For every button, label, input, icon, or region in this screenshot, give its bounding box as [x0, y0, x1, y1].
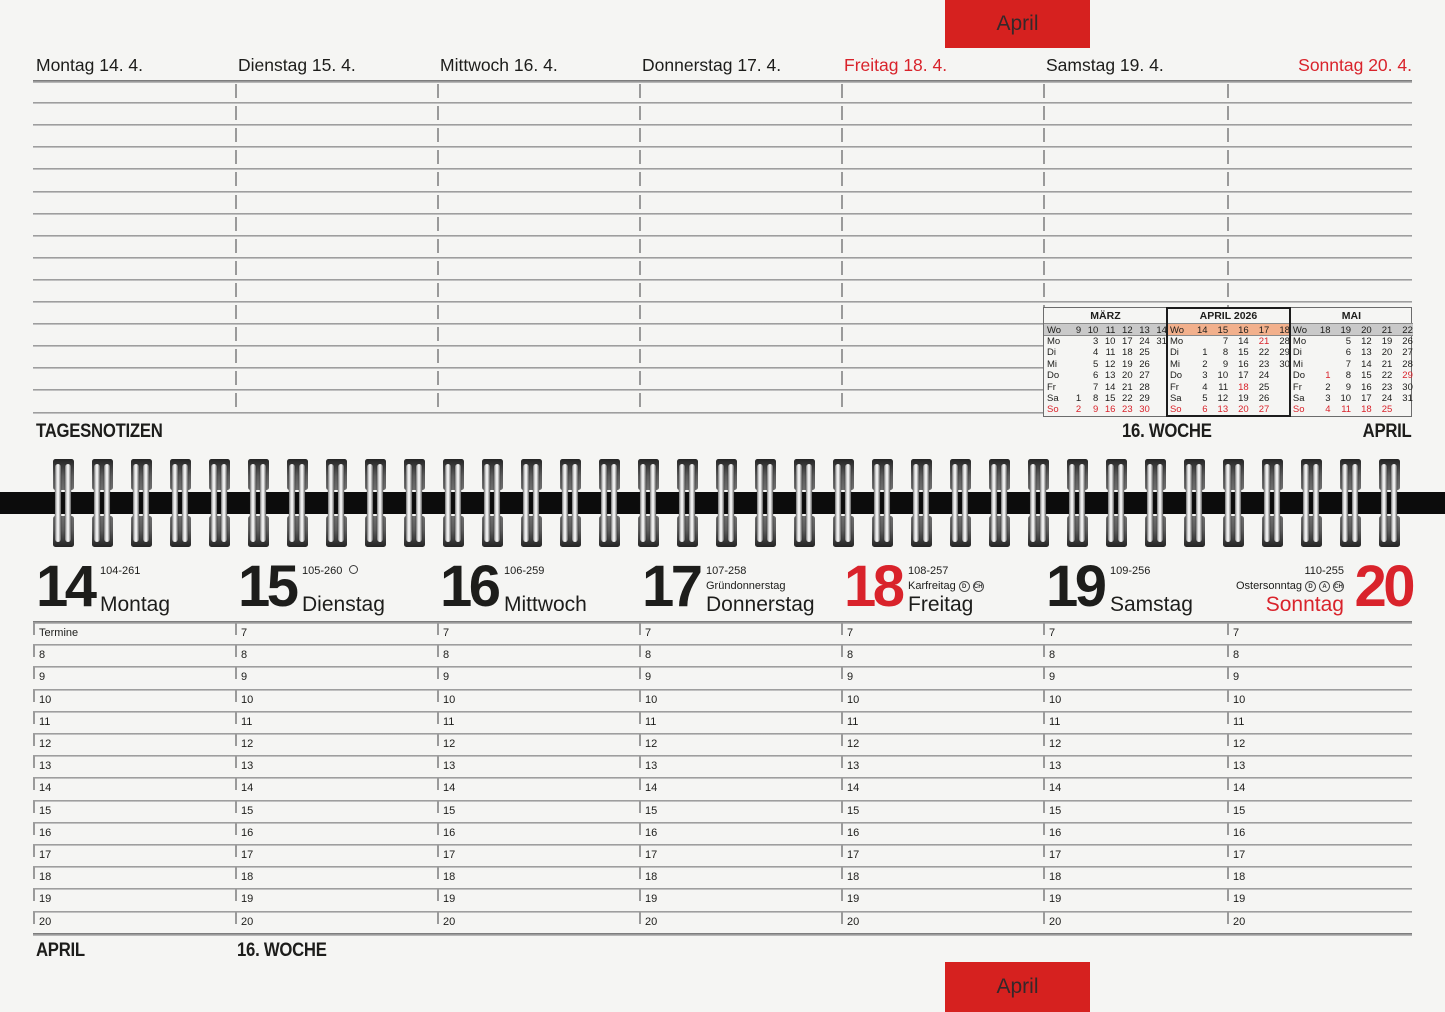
full-moon-icon [349, 565, 358, 574]
column-tick [841, 690, 843, 702]
mini-calendar-weeknumber-row: Wo1819202122 [1290, 323, 1413, 336]
column-tick [235, 867, 237, 879]
column-tick [639, 217, 641, 231]
hour-label: 8 [39, 649, 45, 661]
week-day-block: 17107-258GründonnerstagDonnerstag [642, 556, 842, 622]
week-day-block: 20110-255OstersonntagDACHSonntag [1212, 556, 1412, 622]
column-tick [1227, 283, 1229, 297]
mini-calendar-date: 31 [1392, 393, 1413, 404]
mini-calendar-date: 25 [1249, 382, 1270, 393]
hour-label: 15 [645, 805, 657, 817]
mini-calendar-day-label: Do [1044, 370, 1064, 381]
column-tick [437, 150, 439, 164]
hour-label: 8 [443, 649, 449, 661]
spiral-wire [260, 464, 266, 542]
day-code: 106-259 [504, 565, 587, 580]
hour-label: 16 [847, 827, 859, 839]
column-tick [1043, 217, 1045, 231]
mini-calendar-day-label: Do [1167, 370, 1187, 381]
column-tick [1043, 667, 1045, 679]
spiral-wire [367, 464, 373, 542]
column-tick [235, 889, 237, 901]
hour-label: 7 [847, 627, 853, 639]
mini-calendar-weeknumber: 12 [1115, 324, 1132, 335]
column-tick [437, 778, 439, 790]
column-tick [841, 283, 843, 297]
mini-calendar-date: 14 [1228, 336, 1249, 347]
column-tick [235, 912, 237, 924]
column-tick [841, 623, 843, 635]
week-number-label-bottom: 16. WOCHE [237, 940, 327, 962]
column-tick [235, 261, 237, 275]
spiral-wire [533, 464, 539, 542]
mini-calendar-day-row: Di6132027 [1290, 347, 1413, 358]
mini-calendar-day-label: Fr [1167, 382, 1187, 393]
mini-calendar-date: 13 [1208, 404, 1229, 415]
column-tick [437, 393, 439, 407]
column-tick [639, 889, 641, 901]
mini-calendar-date: 18 [1351, 404, 1372, 415]
mini-calendar-date: 14 [1098, 382, 1115, 393]
mini-calendar-date [1187, 336, 1208, 347]
hour-label: 17 [1049, 849, 1061, 861]
column-tick [235, 756, 237, 768]
mini-calendar-date: 23 [1372, 382, 1393, 393]
day-name: Montag [100, 594, 170, 616]
spiral-wire [601, 464, 607, 542]
mini-calendar-date: 13 [1098, 370, 1115, 381]
spiral-wire [1391, 464, 1397, 542]
spiral-wire [377, 464, 383, 542]
spiral-wire [484, 464, 490, 542]
mini-calendar: MÄRZWo91011121314Mo310172431Di4111825Mi5… [1043, 307, 1412, 417]
notes-line [33, 146, 1412, 148]
mini-calendar-date: 20 [1228, 404, 1249, 415]
hour-label: 8 [1049, 649, 1055, 661]
spiral-wire [494, 464, 500, 542]
hour-label: 7 [1233, 627, 1239, 639]
mini-calendar-date: 12 [1098, 359, 1115, 370]
day-code: 107-258 [706, 565, 815, 580]
day-info: 109-256Samstag [1110, 565, 1193, 616]
mini-calendar-date: 26 [1249, 393, 1270, 404]
mini-calendar-month: MAIWo1819202122Mo5121926Di6132027Mi71421… [1290, 308, 1413, 416]
hour-label: 12 [645, 738, 657, 750]
hour-label: 7 [443, 627, 449, 639]
spiral-wire [913, 464, 919, 542]
week-day-block: 16106-259Mittwoch [440, 556, 640, 622]
spiral-wire [1147, 464, 1153, 542]
hour-label: 17 [847, 849, 859, 861]
column-tick [1043, 128, 1045, 142]
mini-calendar-day-row: Mi29162330 [1167, 359, 1290, 370]
column-tick [1227, 734, 1229, 746]
hour-row-line [33, 933, 1412, 936]
column-tick [639, 867, 641, 879]
day-number: 17 [642, 556, 700, 618]
hour-label: 19 [241, 893, 253, 905]
mini-calendar-date: 6 [1331, 347, 1352, 358]
column-tick [235, 349, 237, 363]
column-tick [841, 845, 843, 857]
spiral-wire [455, 464, 461, 542]
mini-calendar-weeknumber-row: Wo1415161718 [1167, 323, 1290, 336]
column-tick [1227, 889, 1229, 901]
notes-line [33, 124, 1412, 126]
column-tick [639, 734, 641, 746]
spiral-wire [55, 464, 61, 542]
hour-label: 15 [443, 805, 455, 817]
mini-calendar-date: 28 [1133, 382, 1150, 393]
spiral-wire [1079, 464, 1085, 542]
hour-label: 11 [847, 716, 858, 728]
spiral-wire [640, 464, 646, 542]
day-name: Dienstag [302, 594, 385, 616]
week-grid-top-line [33, 621, 1412, 624]
mini-calendar-day-row: Do3101724 [1167, 370, 1290, 381]
spiral-wire [289, 464, 295, 542]
hour-label: 19 [1049, 893, 1061, 905]
column-tick [1227, 645, 1229, 657]
mini-calendar-date: 21 [1372, 359, 1393, 370]
hour-label: 19 [1233, 893, 1245, 905]
column-tick [841, 84, 843, 98]
mini-calendar-date: 22 [1372, 370, 1393, 381]
mini-calendar-date: 15 [1228, 347, 1249, 358]
mini-calendar-date: 7 [1331, 359, 1352, 370]
day-info: 110-255OstersonntagDACHSonntag [1236, 565, 1344, 616]
column-tick [1227, 239, 1229, 253]
day-number: 16 [440, 556, 498, 618]
hour-row-line [33, 777, 1412, 779]
mini-calendar-weeknumber: 17 [1249, 324, 1270, 335]
column-tick [437, 305, 439, 319]
mini-calendar-day-label: Sa [1044, 393, 1064, 404]
hour-row-line [33, 866, 1412, 868]
column-tick [437, 371, 439, 385]
hour-label: 19 [39, 893, 51, 905]
hour-label: 11 [443, 716, 454, 728]
column-tick [235, 667, 237, 679]
hour-label: 16 [645, 827, 657, 839]
column-tick [33, 623, 35, 635]
week-number-label-top: 16. WOCHE [1122, 421, 1212, 443]
spiral-wire [835, 464, 841, 542]
column-tick [235, 283, 237, 297]
holiday-region-icon: D [1305, 581, 1316, 592]
column-tick [235, 217, 237, 231]
column-tick [235, 393, 237, 407]
column-tick [437, 172, 439, 186]
column-tick [1227, 756, 1229, 768]
mini-calendar-weeknumber: 18 [1269, 324, 1290, 335]
column-tick [235, 195, 237, 209]
column-tick [1043, 867, 1045, 879]
column-tick [1227, 845, 1229, 857]
spiral-wire [104, 464, 110, 542]
hour-label: 19 [645, 893, 657, 905]
mini-calendar-date [1269, 370, 1290, 381]
column-tick [1043, 889, 1045, 901]
mini-calendar-day-label: Mo [1167, 336, 1187, 347]
mini-calendar-date [1064, 336, 1081, 347]
spiral-wire [250, 464, 256, 542]
hour-label: 9 [241, 671, 247, 683]
column-tick [841, 327, 843, 341]
day-code: 105-260 [302, 565, 385, 580]
column-tick [841, 823, 843, 835]
mini-calendar-weeknumber: 14 [1187, 324, 1208, 335]
column-tick [1043, 106, 1045, 120]
column-tick [235, 239, 237, 253]
hour-row-line [33, 711, 1412, 713]
column-tick [639, 195, 641, 209]
mini-calendar-day-label: Sa [1290, 393, 1310, 404]
desk-calendar-page: April Montag 14. 4.Dienstag 15. 4.Mittwo… [0, 0, 1445, 1012]
day-info: 106-259Mittwoch [504, 565, 587, 616]
month-tab-top[interactable]: April [945, 0, 1090, 48]
column-tick [1043, 690, 1045, 702]
column-tick [437, 261, 439, 275]
mini-calendar-date: 24 [1372, 393, 1393, 404]
column-tick [1227, 217, 1229, 231]
spiral-wire [1118, 464, 1124, 542]
day-code: 109-256 [1110, 565, 1193, 580]
mini-calendar-date: 21 [1115, 382, 1132, 393]
hour-label: 15 [1049, 805, 1061, 817]
day-info: 107-258GründonnerstagDonnerstag [706, 565, 815, 616]
notes-line [33, 279, 1412, 281]
column-tick [437, 128, 439, 142]
notes-day-header: Donnerstag 17. 4. [642, 55, 781, 76]
mini-calendar-date: 30 [1269, 359, 1290, 370]
column-tick [639, 239, 641, 253]
mini-calendar-date [1150, 393, 1167, 404]
column-tick [1043, 239, 1045, 253]
hour-label: 17 [1233, 849, 1245, 861]
mini-calendar-day-label: Di [1167, 347, 1187, 358]
mini-calendar-date: 30 [1133, 404, 1150, 415]
column-tick [841, 371, 843, 385]
column-tick [437, 734, 439, 746]
column-tick [33, 823, 35, 835]
column-tick [1227, 778, 1229, 790]
hour-label: 11 [39, 716, 50, 728]
column-tick [437, 349, 439, 363]
day-number: 18 [844, 556, 902, 618]
notes-line [33, 235, 1412, 237]
mini-calendar-date [1064, 347, 1081, 358]
holiday-region-icon: CH [973, 581, 984, 592]
hour-label: 13 [39, 760, 51, 772]
hour-label: 16 [443, 827, 455, 839]
month-label-bottom: APRIL [36, 940, 85, 962]
mini-calendar-day-row: So4111825 [1290, 404, 1413, 415]
mini-calendar-day-row: Mo7142128 [1167, 336, 1290, 347]
mini-calendar-day-label: Mi [1290, 359, 1310, 370]
hour-label: 14 [443, 782, 455, 794]
column-tick [639, 261, 641, 275]
mini-calendar-date: 5 [1081, 359, 1098, 370]
mini-calendar-date [1150, 347, 1167, 358]
hour-label: 8 [1233, 649, 1239, 661]
column-tick [235, 305, 237, 319]
mini-calendar-date: 17 [1228, 370, 1249, 381]
spiral-wire [923, 464, 929, 542]
week-day-block: 18108-257KarfreitagDCHFreitag [844, 556, 1044, 622]
mini-calendar-date: 20 [1115, 370, 1132, 381]
column-tick [235, 84, 237, 98]
mini-calendar-weeknumber: 16 [1228, 324, 1249, 335]
spiral-wire [523, 464, 529, 542]
column-tick [437, 867, 439, 879]
column-tick [235, 172, 237, 186]
day-code: 110-255 [1236, 565, 1344, 580]
hour-label: 13 [1049, 760, 1061, 772]
column-tick [841, 128, 843, 142]
mini-calendar-month-title: MAI [1290, 308, 1413, 323]
column-tick [639, 327, 641, 341]
column-tick [1043, 801, 1045, 813]
column-tick [639, 283, 641, 297]
column-tick [1043, 912, 1045, 924]
day-number: 15 [238, 556, 296, 618]
spiral-wire [221, 464, 227, 542]
mini-calendar-date: 9 [1081, 404, 1098, 415]
hour-label: 7 [645, 627, 651, 639]
spiral-wire [845, 464, 851, 542]
mini-calendar-date [1310, 347, 1331, 358]
mini-calendar-date: 9 [1331, 382, 1352, 393]
holiday-region-icon: CH [1333, 581, 1344, 592]
mini-calendar-date: 6 [1187, 404, 1208, 415]
column-tick [639, 667, 641, 679]
column-tick [1043, 845, 1045, 857]
column-tick [437, 912, 439, 924]
mini-calendar-date: 16 [1228, 359, 1249, 370]
column-tick [1043, 172, 1045, 186]
mini-calendar-month-title: MÄRZ [1044, 308, 1167, 323]
day-name: Sonntag [1236, 594, 1344, 616]
mini-calendar-date: 12 [1351, 336, 1372, 347]
column-tick [1043, 823, 1045, 835]
hour-label: 18 [39, 871, 51, 883]
hour-label: 12 [1049, 738, 1061, 750]
day-info: 104-261Montag [100, 565, 170, 616]
column-tick [1227, 690, 1229, 702]
hour-label: 19 [847, 893, 859, 905]
mini-calendar-date [1150, 359, 1167, 370]
mini-calendar-month: APRIL 2026Wo1415161718Mo7142128Di1815222… [1167, 308, 1290, 416]
holiday-label [302, 580, 385, 594]
mini-calendar-date: 25 [1372, 404, 1393, 415]
spiral-wire [133, 464, 139, 542]
hour-label: 10 [443, 694, 455, 706]
column-tick [841, 195, 843, 209]
column-tick [1227, 801, 1229, 813]
column-tick [437, 889, 439, 901]
spiral-wire [94, 464, 100, 542]
column-tick [1227, 84, 1229, 98]
month-tab-top-label: April [996, 12, 1038, 36]
column-tick [1227, 128, 1229, 142]
column-tick [437, 239, 439, 253]
spiral-wire [884, 464, 890, 542]
column-tick [841, 867, 843, 879]
month-tab-bottom[interactable]: April [945, 962, 1090, 1012]
mini-calendar-date: 23 [1115, 404, 1132, 415]
mini-calendar-weeknumber: 20 [1351, 324, 1372, 335]
column-tick [235, 150, 237, 164]
column-tick [639, 645, 641, 657]
mini-calendar-day-row: Sa310172431 [1290, 393, 1413, 404]
spiral-wire [299, 464, 305, 542]
mini-calendar-date: 7 [1208, 336, 1229, 347]
mini-calendar-date: 15 [1351, 370, 1372, 381]
hour-label: 10 [241, 694, 253, 706]
mini-calendar-day-row: Do6132027 [1044, 370, 1167, 381]
mini-calendar-month: MÄRZWo91011121314Mo310172431Di4111825Mi5… [1044, 308, 1167, 416]
holiday-label [100, 580, 170, 594]
column-tick [841, 889, 843, 901]
mini-calendar-day-label: Di [1290, 347, 1310, 358]
spiral-wire [1225, 464, 1231, 542]
notes-line [33, 168, 1412, 170]
hour-label: 9 [1233, 671, 1239, 683]
mini-calendar-weeknumber: 9 [1064, 324, 1081, 335]
column-tick [1227, 261, 1229, 275]
column-tick [639, 305, 641, 319]
column-tick [639, 84, 641, 98]
hour-label: 9 [847, 671, 853, 683]
hour-label: 9 [443, 671, 449, 683]
column-tick [235, 778, 237, 790]
day-info: 105-260Dienstag [302, 565, 385, 616]
mini-calendar-date: 19 [1228, 393, 1249, 404]
hour-label: 10 [1233, 694, 1245, 706]
day-number: 20 [1354, 556, 1412, 618]
column-tick [437, 645, 439, 657]
spiral-wire [611, 464, 617, 542]
column-tick [841, 305, 843, 319]
column-tick [1227, 912, 1229, 924]
column-tick [235, 845, 237, 857]
hour-label: 18 [1049, 871, 1061, 883]
hour-label: 10 [645, 694, 657, 706]
column-tick [235, 645, 237, 657]
spiral-wire [1157, 464, 1163, 542]
column-tick [1227, 667, 1229, 679]
mini-calendar-date: 24 [1249, 370, 1270, 381]
hour-label: 15 [1233, 805, 1245, 817]
mini-calendar-date: 28 [1269, 336, 1290, 347]
column-tick [841, 712, 843, 724]
day-name: Freitag [908, 594, 984, 616]
mini-calendar-day-row: Fr29162330 [1290, 382, 1413, 393]
holiday-region-icon: D [959, 581, 970, 592]
column-tick [639, 845, 641, 857]
hour-label: 20 [1049, 916, 1061, 928]
column-tick [1227, 195, 1229, 209]
spiral-wire [1001, 464, 1007, 542]
day-name: Donnerstag [706, 594, 815, 616]
column-tick [639, 801, 641, 813]
mini-calendar-date [1064, 370, 1081, 381]
notes-line [33, 301, 1412, 303]
mini-calendar-date [1150, 370, 1167, 381]
hour-label: 16 [1049, 827, 1061, 839]
mini-calendar-day-label: Mi [1044, 359, 1064, 370]
